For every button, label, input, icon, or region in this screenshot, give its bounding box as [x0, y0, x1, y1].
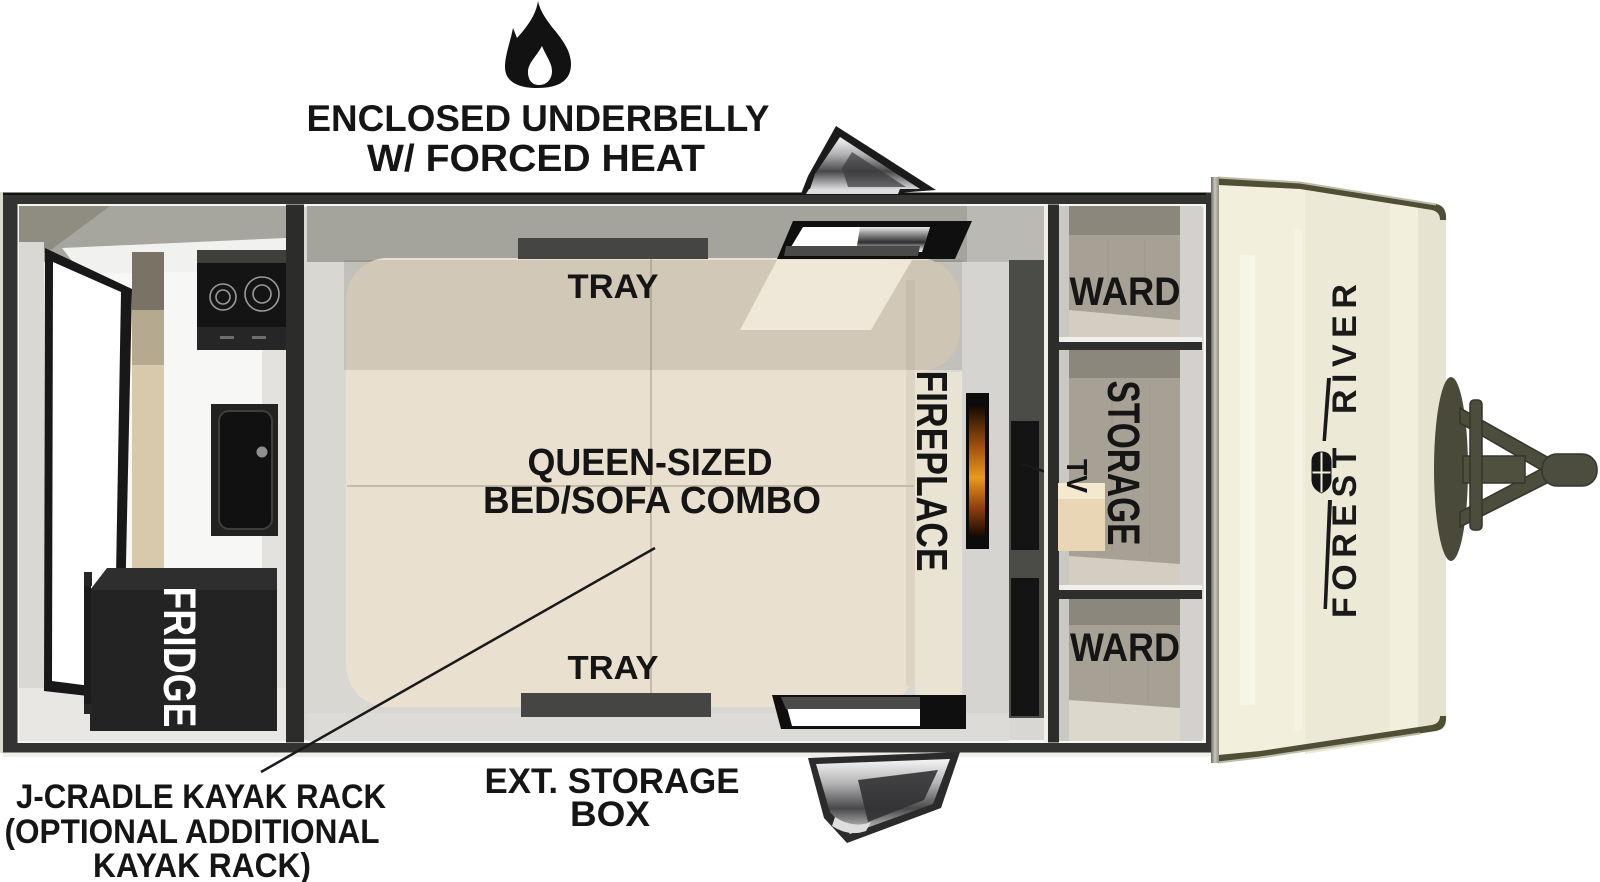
svg-text:BED/SOFA COMBO: BED/SOFA COMBO: [483, 480, 821, 522]
svg-text:WARD: WARD: [1070, 270, 1181, 314]
svg-text:WARD: WARD: [1070, 626, 1180, 670]
svg-text:FOREST: FOREST: [1326, 441, 1364, 618]
svg-text:TRAY: TRAY: [568, 649, 659, 686]
svg-text:STORAGE: STORAGE: [1098, 381, 1149, 546]
svg-text:(OPTIONAL ADDITIONAL: (OPTIONAL ADDITIONAL: [5, 813, 380, 851]
svg-text:RIVER: RIVER: [1326, 278, 1364, 414]
svg-text:TV: TV: [1060, 459, 1092, 494]
svg-text:KAYAK RACK): KAYAK RACK): [93, 847, 311, 882]
svg-text:FRIDGE: FRIDGE: [154, 587, 205, 728]
svg-text:TRAY: TRAY: [568, 268, 659, 306]
svg-text:BOX: BOX: [570, 795, 651, 834]
svg-text:FIREPLACE: FIREPLACE: [907, 371, 956, 572]
svg-text:J-CRADLE KAYAK RACK: J-CRADLE KAYAK RACK: [16, 778, 386, 816]
svg-text:QUEEN-SIZED: QUEEN-SIZED: [528, 442, 773, 484]
svg-text:ENCLOSED UNDERBELLY: ENCLOSED UNDERBELLY: [307, 98, 770, 139]
svg-text:W/ FORCED HEAT: W/ FORCED HEAT: [367, 138, 705, 180]
